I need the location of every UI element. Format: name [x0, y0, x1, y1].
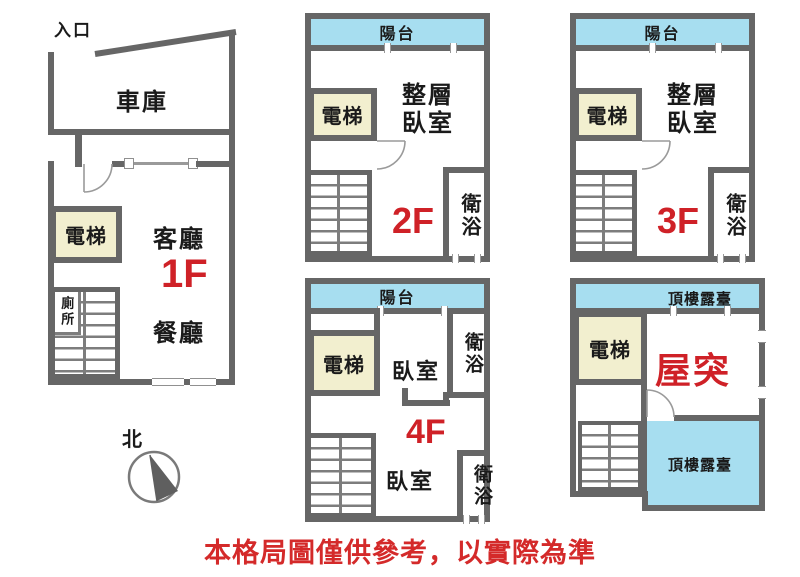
- wall-segment: [642, 505, 765, 511]
- wall-segment: [576, 45, 749, 51]
- compass-circle: [129, 452, 179, 502]
- elevator-room: 電梯: [50, 206, 122, 263]
- door-jamb-marker: [715, 43, 722, 53]
- balcony-4f: 陽台: [311, 284, 484, 308]
- wall-segment: [443, 392, 449, 406]
- floor-plan-sheet: 入口 車庫 電梯 客廳 1F 餐廳 廁所 陽台 電梯 整層 臥室 衛浴 2F: [0, 0, 800, 577]
- roof-terrace-label-bottom: 頂樓露臺: [650, 454, 750, 475]
- bedroom-lower-label: 臥室: [386, 464, 434, 496]
- stair-divider: [337, 175, 340, 251]
- window-glass-line: [134, 162, 190, 165]
- bathroom-lower-label: 衛浴: [468, 464, 495, 508]
- bedroom-label: 整層 臥室: [665, 82, 721, 139]
- compass-north-label: 北: [122, 423, 144, 452]
- balcony-3f: 陽台: [576, 19, 749, 45]
- penthouse-label: 屋突: [655, 342, 731, 394]
- wall-segment: [674, 415, 759, 421]
- door-jamb-marker: [450, 43, 457, 53]
- balcony-label: 陽台: [379, 20, 415, 44]
- wall-segment: [570, 491, 648, 497]
- elevator-label: 電梯: [323, 349, 365, 378]
- roof-terrace-label-top: 頂樓露臺: [640, 288, 760, 309]
- entrance-label: 入口: [54, 16, 92, 41]
- wall-segment: [374, 308, 380, 332]
- wall-segment: [311, 308, 484, 314]
- elevator-label: 電梯: [589, 334, 631, 363]
- door-jamb-marker: [478, 515, 485, 524]
- disclaimer-text: 本格局圖僅供參考，以實際為準: [0, 531, 800, 570]
- wall-segment: [311, 45, 484, 51]
- dining-room-label: 餐廳: [153, 313, 205, 348]
- bathroom-label: 衛浴: [455, 193, 484, 239]
- balcony-label: 陽台: [644, 20, 680, 44]
- living-room-label: 客廳: [153, 219, 205, 254]
- wall-segment: [75, 129, 82, 167]
- door-swing-arc: [84, 164, 112, 192]
- toilet-room: 廁所: [55, 292, 81, 335]
- elevator-label: 電梯: [587, 100, 629, 129]
- wall-segment: [708, 167, 714, 262]
- window-marker: [190, 378, 216, 386]
- elevator-room: 電梯: [573, 311, 647, 385]
- wall-segment: [447, 308, 453, 398]
- toilet-label: 廁所: [57, 296, 76, 328]
- bedroom-label: 整層 臥室: [400, 82, 456, 139]
- staircase: [306, 433, 376, 518]
- wall-segment: [402, 388, 408, 404]
- door-jamb-marker: [474, 254, 481, 263]
- compass-needle: [150, 455, 178, 501]
- bathroom-upper-label: 衛浴: [459, 332, 486, 376]
- staircase: [306, 170, 372, 256]
- elevator-label: 電梯: [65, 220, 107, 249]
- stair-divider: [83, 292, 86, 374]
- wall-segment: [443, 167, 490, 173]
- wall-segment: [642, 491, 648, 511]
- door-jamb-marker: [739, 254, 746, 263]
- stair-divider: [339, 438, 342, 513]
- elevator-room: 電梯: [573, 88, 642, 141]
- wall-segment: [457, 450, 463, 522]
- window-marker: [758, 330, 766, 343]
- staircase: 廁所: [50, 287, 120, 379]
- wall-segment: [570, 278, 765, 284]
- staircase: [578, 421, 642, 491]
- wall-segment: [229, 30, 235, 385]
- door-jamb-marker: [463, 515, 470, 524]
- door-jamb-marker: [384, 43, 391, 53]
- wall-segment: [196, 161, 229, 167]
- door-jamb-marker: [452, 254, 459, 263]
- bedroom-label-line2: 臥室: [667, 110, 719, 137]
- door-jamb-marker: [717, 254, 724, 263]
- window-marker: [758, 386, 766, 399]
- floor-label-1f: 1F: [161, 252, 208, 297]
- stair-divider: [602, 175, 605, 251]
- balcony-2f: 陽台: [311, 19, 484, 45]
- slanted-wall: [95, 32, 236, 54]
- garage-label: 車庫: [116, 82, 168, 117]
- door-jamb-marker: [649, 43, 656, 53]
- elevator-room: 電梯: [308, 88, 377, 141]
- elevator-room: 電梯: [308, 330, 380, 396]
- floor-label-2f: 2F: [392, 200, 434, 242]
- wall-segment: [48, 52, 54, 135]
- stair-divider: [608, 425, 611, 487]
- bedroom-label-line1: 整層: [402, 82, 454, 109]
- floor-label-3f: 3F: [657, 200, 699, 242]
- window-marker: [124, 158, 134, 169]
- wall-segment: [708, 167, 755, 173]
- bathroom-label: 衛浴: [720, 193, 749, 239]
- bedroom-label-line1: 整層: [667, 82, 719, 109]
- bedroom-label-line2: 臥室: [402, 110, 454, 137]
- wall-segment: [447, 392, 490, 398]
- compass-needle-edge: [150, 455, 157, 501]
- staircase: [571, 170, 637, 256]
- window-marker: [152, 378, 184, 386]
- floor-label-4f: 4F: [406, 413, 446, 452]
- bedroom-upper-label: 臥室: [392, 354, 440, 386]
- wall-segment: [443, 167, 449, 262]
- balcony-label: 陽台: [379, 284, 415, 308]
- elevator-label: 電梯: [322, 100, 364, 129]
